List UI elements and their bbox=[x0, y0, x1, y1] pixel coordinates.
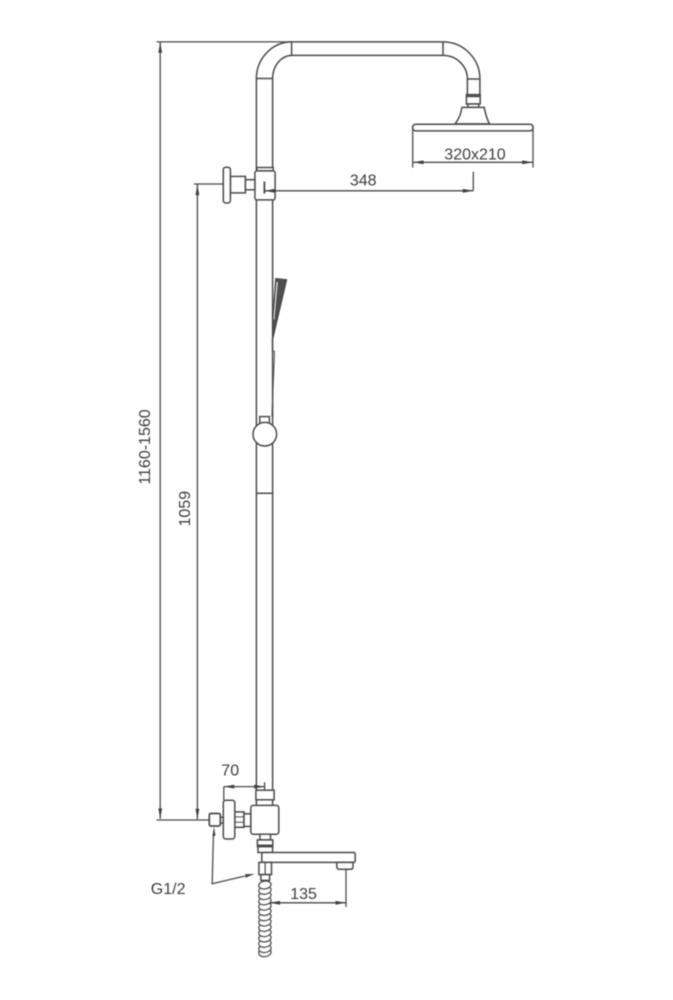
svg-text:135: 135 bbox=[290, 886, 317, 903]
svg-text:1059: 1059 bbox=[177, 491, 194, 527]
svg-text:70: 70 bbox=[221, 762, 239, 779]
svg-text:1160-1560: 1160-1560 bbox=[137, 409, 154, 484]
svg-text:348: 348 bbox=[350, 173, 377, 190]
svg-text:G1/2: G1/2 bbox=[151, 881, 186, 898]
svg-text:320x210: 320x210 bbox=[444, 147, 505, 164]
